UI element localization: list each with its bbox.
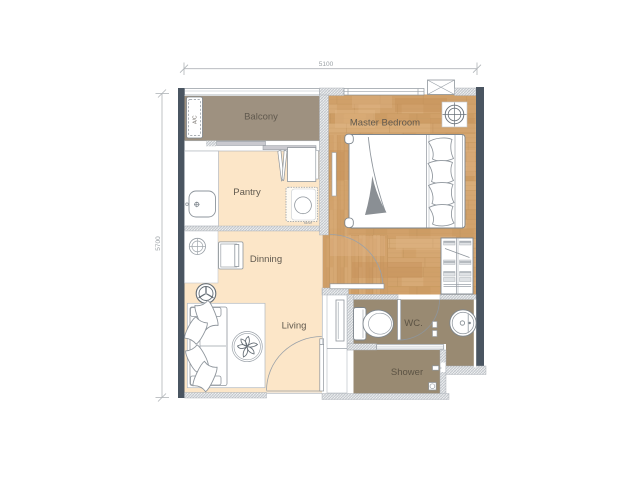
- svg-text:stove: stove: [304, 221, 312, 225]
- svg-text:5100: 5100: [319, 61, 334, 68]
- svg-text:Master Bedroom: Master Bedroom: [350, 118, 420, 129]
- svg-text:5700: 5700: [155, 236, 162, 251]
- svg-text:Shower: Shower: [391, 367, 423, 378]
- svg-text:A/C: A/C: [193, 115, 199, 124]
- svg-text:Pantry: Pantry: [233, 187, 261, 198]
- svg-text:Dinning: Dinning: [250, 254, 282, 265]
- svg-text:Balcony: Balcony: [244, 112, 278, 123]
- svg-text:WC.: WC.: [404, 318, 422, 329]
- svg-text:Living: Living: [282, 321, 307, 332]
